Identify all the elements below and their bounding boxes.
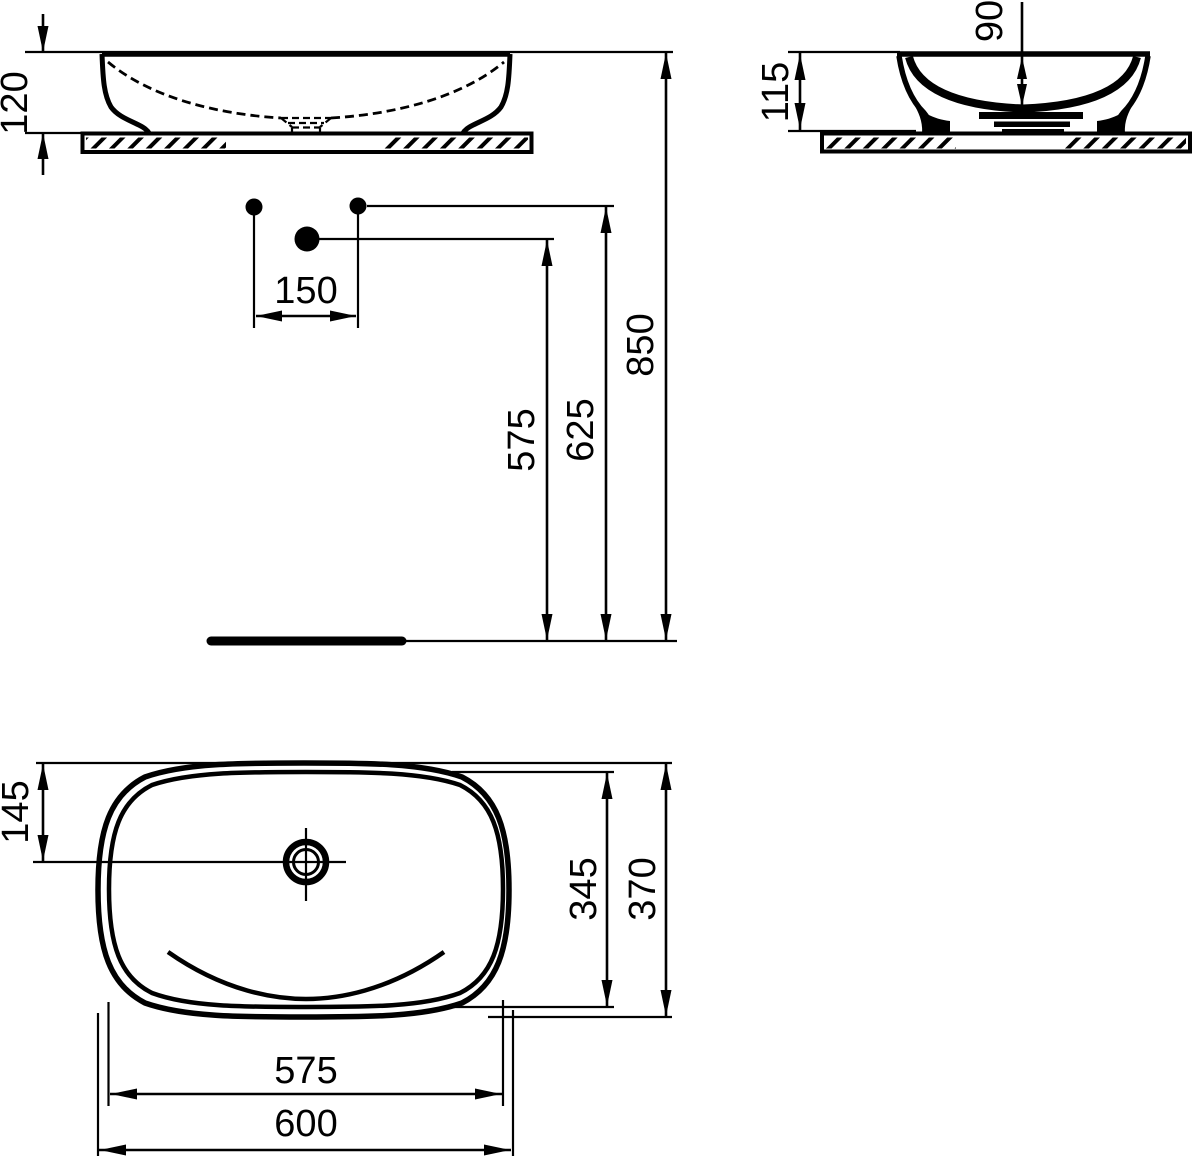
arrow-down-icon <box>38 26 49 52</box>
dimension-600: 600 <box>99 1103 511 1156</box>
arrow-up-icon <box>38 133 49 159</box>
front-drain-dashed <box>281 118 331 134</box>
arrow-left-icon <box>100 1145 126 1156</box>
dim-label-345: 345 <box>563 857 605 920</box>
arrow-down-icon <box>38 835 49 861</box>
basin-left-side <box>102 54 149 133</box>
inner-bowl-dashed-left <box>108 62 281 118</box>
fixing-point-left <box>246 199 263 216</box>
dim-label-150: 150 <box>274 270 337 312</box>
dimension-120: 120 <box>0 14 49 175</box>
countertop-hatch-left <box>826 138 956 149</box>
countertop-hatch-right <box>384 138 528 149</box>
arrow-up-icon <box>1017 57 1027 79</box>
arrow-up-icon <box>542 240 553 266</box>
fixing-point-right <box>350 198 367 215</box>
arrow-up-icon <box>601 207 612 233</box>
dim-label-115: 115 <box>755 62 797 123</box>
dimension-850: 850 <box>620 52 672 641</box>
bowl-bottom-curve <box>168 952 444 999</box>
technical-drawing-page: 120 <box>0 0 1200 1156</box>
countertop-hatch-right <box>1065 138 1186 149</box>
dimension-345: 345 <box>563 772 613 1007</box>
arrow-left-icon <box>111 1089 137 1100</box>
dimension-370: 370 <box>622 763 672 1017</box>
side-view: 115 90 <box>755 0 1190 152</box>
dim-label-145: 145 <box>0 780 37 843</box>
dimension-625: 625 <box>560 206 612 641</box>
top-drain <box>286 828 326 901</box>
drain-stack-bar-2 <box>994 122 1070 128</box>
arrow-down-icon <box>661 990 672 1016</box>
top-view: 145 345 370 575 600 <box>0 763 672 1156</box>
dim-label-600: 600 <box>274 1103 337 1145</box>
dim-label-625: 625 <box>560 398 602 461</box>
front-countertop <box>83 134 532 153</box>
arrow-down-icon <box>602 980 613 1006</box>
outer-rim-outline <box>98 763 509 1017</box>
arrow-down-icon <box>542 614 553 640</box>
arrow-up-icon <box>602 773 613 799</box>
inner-bowl-dashed-right <box>331 62 504 118</box>
basin-right-side <box>463 54 510 133</box>
arrow-right-icon <box>475 1089 501 1100</box>
arrow-down-icon <box>601 614 612 640</box>
dim-label-90: 90 <box>969 0 1011 42</box>
waste-connection-point <box>295 227 320 252</box>
countertop-hatch-left <box>86 138 226 149</box>
front-basin-outline <box>102 54 510 134</box>
dimension-145: 145 <box>0 763 49 862</box>
dimension-575-height: 575 <box>501 239 553 641</box>
top-basin-outline <box>98 763 509 1017</box>
dimension-150: 150 <box>256 270 356 322</box>
dim-label-575-height: 575 <box>501 408 543 471</box>
arrow-left-icon <box>256 311 282 322</box>
arrow-down-icon <box>1017 84 1027 106</box>
drain-stack-bar-1 <box>979 112 1083 119</box>
dimension-575-width: 575 <box>110 1050 502 1100</box>
arrow-up-icon <box>38 764 49 790</box>
dim-label-370: 370 <box>622 857 664 920</box>
arrow-up-icon <box>661 53 672 79</box>
dim-label-120: 120 <box>0 71 36 134</box>
arrow-right-icon <box>330 311 356 322</box>
arrow-up-icon <box>661 764 672 790</box>
side-countertop <box>822 134 1190 152</box>
dimension-115: 115 <box>755 52 806 131</box>
arrow-down-icon <box>661 614 672 640</box>
dim-label-575-width: 575 <box>274 1050 337 1092</box>
dim-label-850: 850 <box>620 313 662 376</box>
washbasin-dimension-drawing: 120 <box>0 0 1200 1156</box>
arrow-right-icon <box>484 1145 510 1156</box>
front-view: 120 <box>0 14 673 175</box>
